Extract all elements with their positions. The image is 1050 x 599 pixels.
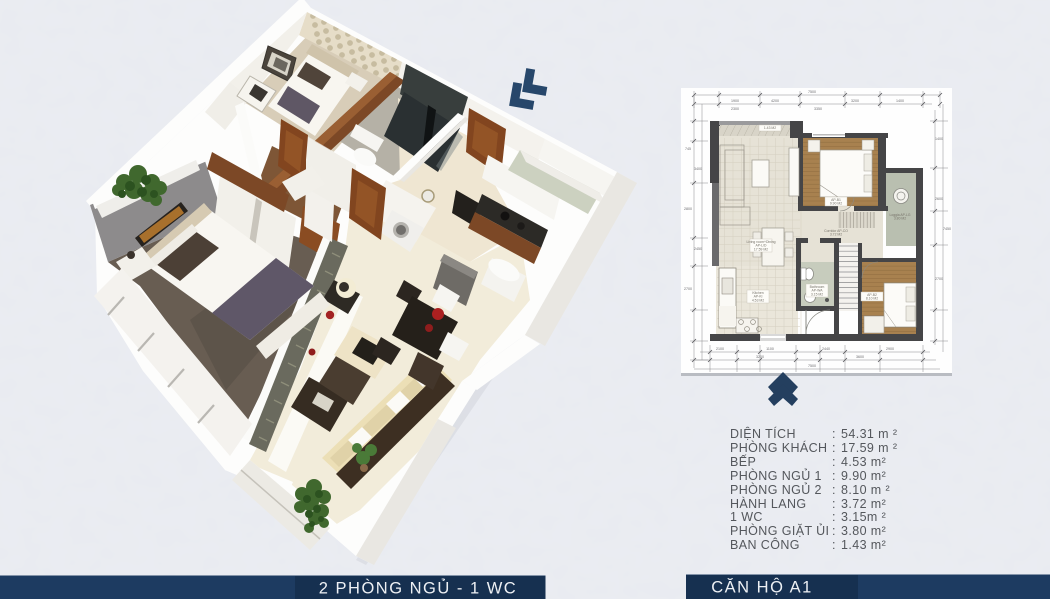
svg-text:4.53 M2: 4.53 M2 xyxy=(752,298,764,302)
svg-text:3.15m ²: 3.15m ² xyxy=(841,510,886,524)
svg-text::: : xyxy=(832,510,836,524)
svg-text:2700: 2700 xyxy=(684,287,692,291)
svg-text:HÀNH LANG: HÀNH LANG xyxy=(730,496,807,511)
svg-text::: : xyxy=(832,427,836,441)
svg-text:3.15 M2: 3.15 M2 xyxy=(811,292,823,296)
svg-text:2450: 2450 xyxy=(694,247,702,251)
svg-text:3600: 3600 xyxy=(856,355,864,359)
svg-text:1400: 1400 xyxy=(896,99,904,103)
svg-text:PHÒNG KHÁCH: PHÒNG KHÁCH xyxy=(730,440,827,455)
svg-text::: : xyxy=(832,455,836,469)
svg-text:2300: 2300 xyxy=(731,107,739,111)
svg-text:1900: 1900 xyxy=(731,99,739,103)
svg-text:DIỆN TÍCH: DIỆN TÍCH xyxy=(730,426,796,441)
svg-text:7450: 7450 xyxy=(943,227,951,231)
svg-text::: : xyxy=(832,538,836,552)
svg-text::: : xyxy=(832,524,836,538)
svg-text:2600: 2600 xyxy=(935,197,943,201)
svg-text:PHÒNG NGỦ 2: PHÒNG NGỦ 2 xyxy=(730,482,822,497)
svg-text:3.80 m²: 3.80 m² xyxy=(841,524,886,538)
svg-text:8.10 M2: 8.10 M2 xyxy=(866,297,878,301)
svg-text:3.72 M2: 3.72 M2 xyxy=(830,233,842,237)
svg-text:4200: 4200 xyxy=(771,99,779,103)
svg-text:PHÒNG GIẶT ỦI: PHÒNG GIẶT ỦI xyxy=(730,523,829,538)
svg-text:8.10 m ²: 8.10 m ² xyxy=(841,483,890,497)
svg-text:3400: 3400 xyxy=(694,167,702,171)
svg-text:PHÒNG NGỦ 1: PHÒNG NGỦ 1 xyxy=(730,468,822,483)
svg-text::: : xyxy=(832,469,836,483)
svg-text:BẾP: BẾP xyxy=(730,454,756,469)
svg-text:17.59 m ²: 17.59 m ² xyxy=(841,441,897,455)
svg-text:1.43 m²: 1.43 m² xyxy=(841,538,886,552)
svg-text:2700: 2700 xyxy=(935,277,943,281)
svg-text:9.90 m²: 9.90 m² xyxy=(841,469,886,483)
svg-text:3200: 3200 xyxy=(851,99,859,103)
svg-text:1400: 1400 xyxy=(935,137,943,141)
svg-text:1 WC: 1 WC xyxy=(730,510,763,524)
svg-text:2900: 2900 xyxy=(886,347,894,351)
svg-text:7500: 7500 xyxy=(808,90,816,94)
svg-text:1100: 1100 xyxy=(766,347,774,351)
svg-text:3350: 3350 xyxy=(814,107,822,111)
svg-text:2100: 2100 xyxy=(716,347,724,351)
svg-text::: : xyxy=(832,441,836,455)
svg-text:54.31 m ²: 54.31 m ² xyxy=(841,427,897,441)
svg-text:3.80 M2: 3.80 M2 xyxy=(894,217,906,221)
svg-text:9.90 M2: 9.90 M2 xyxy=(830,202,842,206)
svg-text:3.72 m²: 3.72 m² xyxy=(841,497,886,511)
svg-text:2 PHÒNG NGỦ - 1 WC: 2 PHÒNG NGỦ - 1 WC xyxy=(319,579,517,598)
svg-text:7500: 7500 xyxy=(808,364,816,368)
svg-text:2440: 2440 xyxy=(822,347,830,351)
svg-text:2800: 2800 xyxy=(684,207,692,211)
svg-text::: : xyxy=(832,497,836,511)
svg-text::: : xyxy=(832,483,836,497)
svg-text:1.43 M2: 1.43 M2 xyxy=(764,126,776,130)
svg-text:17.59 M2: 17.59 M2 xyxy=(754,247,768,251)
svg-text:BAN CÔNG: BAN CÔNG xyxy=(730,537,800,552)
svg-text:745: 745 xyxy=(685,147,691,151)
svg-text:CĂN HỘ A1: CĂN HỘ A1 xyxy=(711,578,813,597)
svg-text:3200: 3200 xyxy=(756,355,764,359)
svg-text:4.53 m²: 4.53 m² xyxy=(841,455,886,469)
